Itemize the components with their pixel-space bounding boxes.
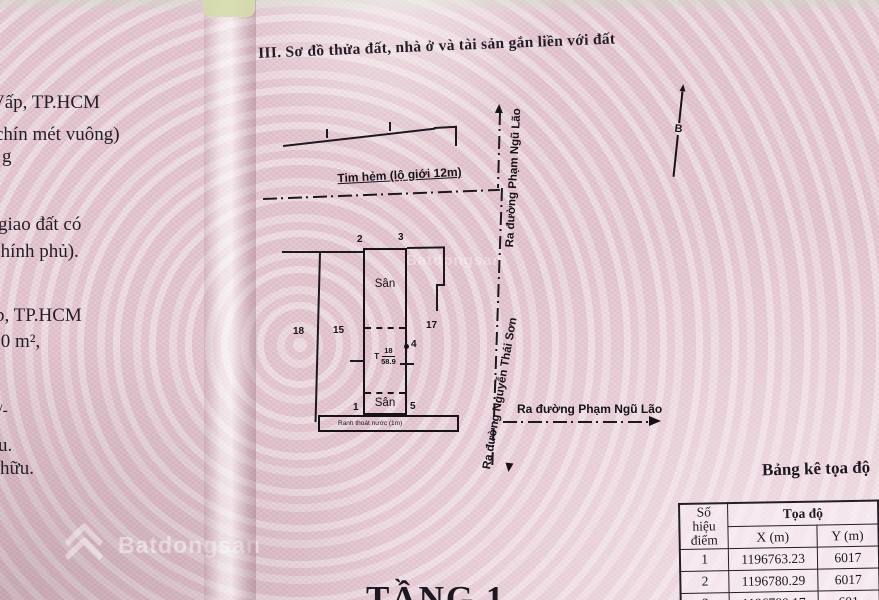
coord-y: 6017 xyxy=(818,568,879,591)
plot-vertex-2: 2 xyxy=(357,234,363,245)
road-arrow-down-icon xyxy=(505,463,514,473)
left-text-fragment: u. xyxy=(0,435,12,457)
road-up-label: Ra đường Phạm Ngũ Lão xyxy=(504,108,523,248)
alley-building-tick xyxy=(326,129,328,138)
watermark-brand-bottom: Batdongsan xyxy=(118,532,261,559)
plot-number-area-fraction: 18 58.9 xyxy=(381,347,396,365)
plot-vertex-4: 4 xyxy=(411,339,417,350)
coord-y: 6017 xyxy=(817,546,879,569)
left-text-fragment: Vấp, TP.HCM xyxy=(0,92,100,114)
watermark-brand-top: Batdongsan xyxy=(406,252,503,269)
left-text-fragment: chín mét vuông) xyxy=(0,124,120,146)
coords-header-x: X (m) xyxy=(728,525,817,549)
left-text-fragment: /- xyxy=(0,402,8,420)
point-id: 2 xyxy=(680,571,729,594)
road-line-upper xyxy=(497,112,501,188)
neighbor-line-right-v2 xyxy=(436,285,438,311)
dimension-tick xyxy=(400,363,414,365)
coords-table-title: Bảng kê tọa độ xyxy=(762,458,871,481)
alley-building-tick xyxy=(389,122,391,131)
plot-vertex-5: 5 xyxy=(410,401,416,412)
left-text-fragment: giao đất có xyxy=(0,214,81,236)
road-right-arrow-line xyxy=(503,421,651,423)
plot-ref-prefix: T xyxy=(374,352,379,361)
plot-outline xyxy=(363,248,407,415)
drainage-label: Ranh thoát nước (1m) xyxy=(320,417,457,427)
alley-building-line xyxy=(434,126,457,129)
left-text-fragment: g xyxy=(2,146,12,168)
coords-header-coords: Tọa độ xyxy=(728,501,879,527)
plot-vertex-4-dot xyxy=(404,344,409,349)
yard-top-label: Sân xyxy=(363,278,407,290)
left-text-fragment: ,0 m², xyxy=(0,331,40,353)
north-arrow: B xyxy=(665,83,691,184)
yard-bottom-label: Sân xyxy=(363,397,407,409)
alley-building-line xyxy=(283,128,435,147)
dimension-tick xyxy=(350,360,364,362)
section-title: III. Sơ đồ thửa đất, nhà ở và tài sản gắ… xyxy=(258,27,698,63)
plot-vertex-1: 1 xyxy=(353,402,359,413)
fold-tab xyxy=(203,0,255,17)
left-text-fragment: Chính phủ). xyxy=(0,241,79,263)
plot-number: 18 xyxy=(382,347,394,357)
plot-divider-dashed xyxy=(365,392,405,394)
neighbor-line-top xyxy=(282,251,363,253)
north-line xyxy=(678,91,684,123)
coord-y: 601 xyxy=(818,590,879,600)
certificate-page-photo: Batdongsan Batdongsan III. Sơ đồ thửa đấ… xyxy=(0,0,879,600)
plot-vertex-3: 3 xyxy=(398,232,404,243)
neighbor-parcel-label: 15 xyxy=(333,325,344,336)
neighbor-parcel-label: 18 xyxy=(293,326,304,337)
north-line xyxy=(672,135,679,177)
alley-building-line xyxy=(455,126,457,146)
north-label: B xyxy=(674,123,683,136)
page-fold-crease xyxy=(204,0,256,600)
neighbor-line-left xyxy=(315,252,321,422)
floor-label: TẦNG 1 xyxy=(366,579,505,600)
plot-area: 58.9 xyxy=(381,357,396,366)
road-right-label: Ra đường Phạm Ngũ Lão xyxy=(517,402,662,416)
neighbor-parcel-label: 17 xyxy=(426,320,437,331)
coord-x: 1196780.17 xyxy=(729,591,818,600)
point-id: 3 xyxy=(681,593,730,600)
left-text-fragment: p, TP.HCM xyxy=(0,305,82,327)
road-right-arrowhead-icon xyxy=(649,416,661,426)
drainage-strip: Ranh thoát nước (1m) xyxy=(318,415,459,432)
alley-centerline xyxy=(263,189,500,200)
coord-x: 1196763.23 xyxy=(729,547,818,571)
coords-header-point: Số hiệu điểm xyxy=(679,503,729,549)
point-id: 1 xyxy=(680,549,729,572)
plot-divider-dashed xyxy=(365,327,405,329)
neighbor-line-right-top xyxy=(407,246,445,249)
neighbor-line-right-v xyxy=(443,247,445,286)
coord-x: 1196780.29 xyxy=(729,569,818,593)
coords-table: Số hiệu điểm Tọa độ X (m) Y (m) 1 119676… xyxy=(678,499,879,600)
left-text-fragment: hữu. xyxy=(0,458,34,480)
coords-header-y: Y (m) xyxy=(817,524,879,547)
alley-label: Tim hẻm (lộ giới 12m) xyxy=(332,164,468,185)
road-down-label: Ra đường Nguyễn Thái Sơn xyxy=(481,317,520,470)
coords-header-row: Số hiệu điểm Tọa độ xyxy=(679,501,878,528)
